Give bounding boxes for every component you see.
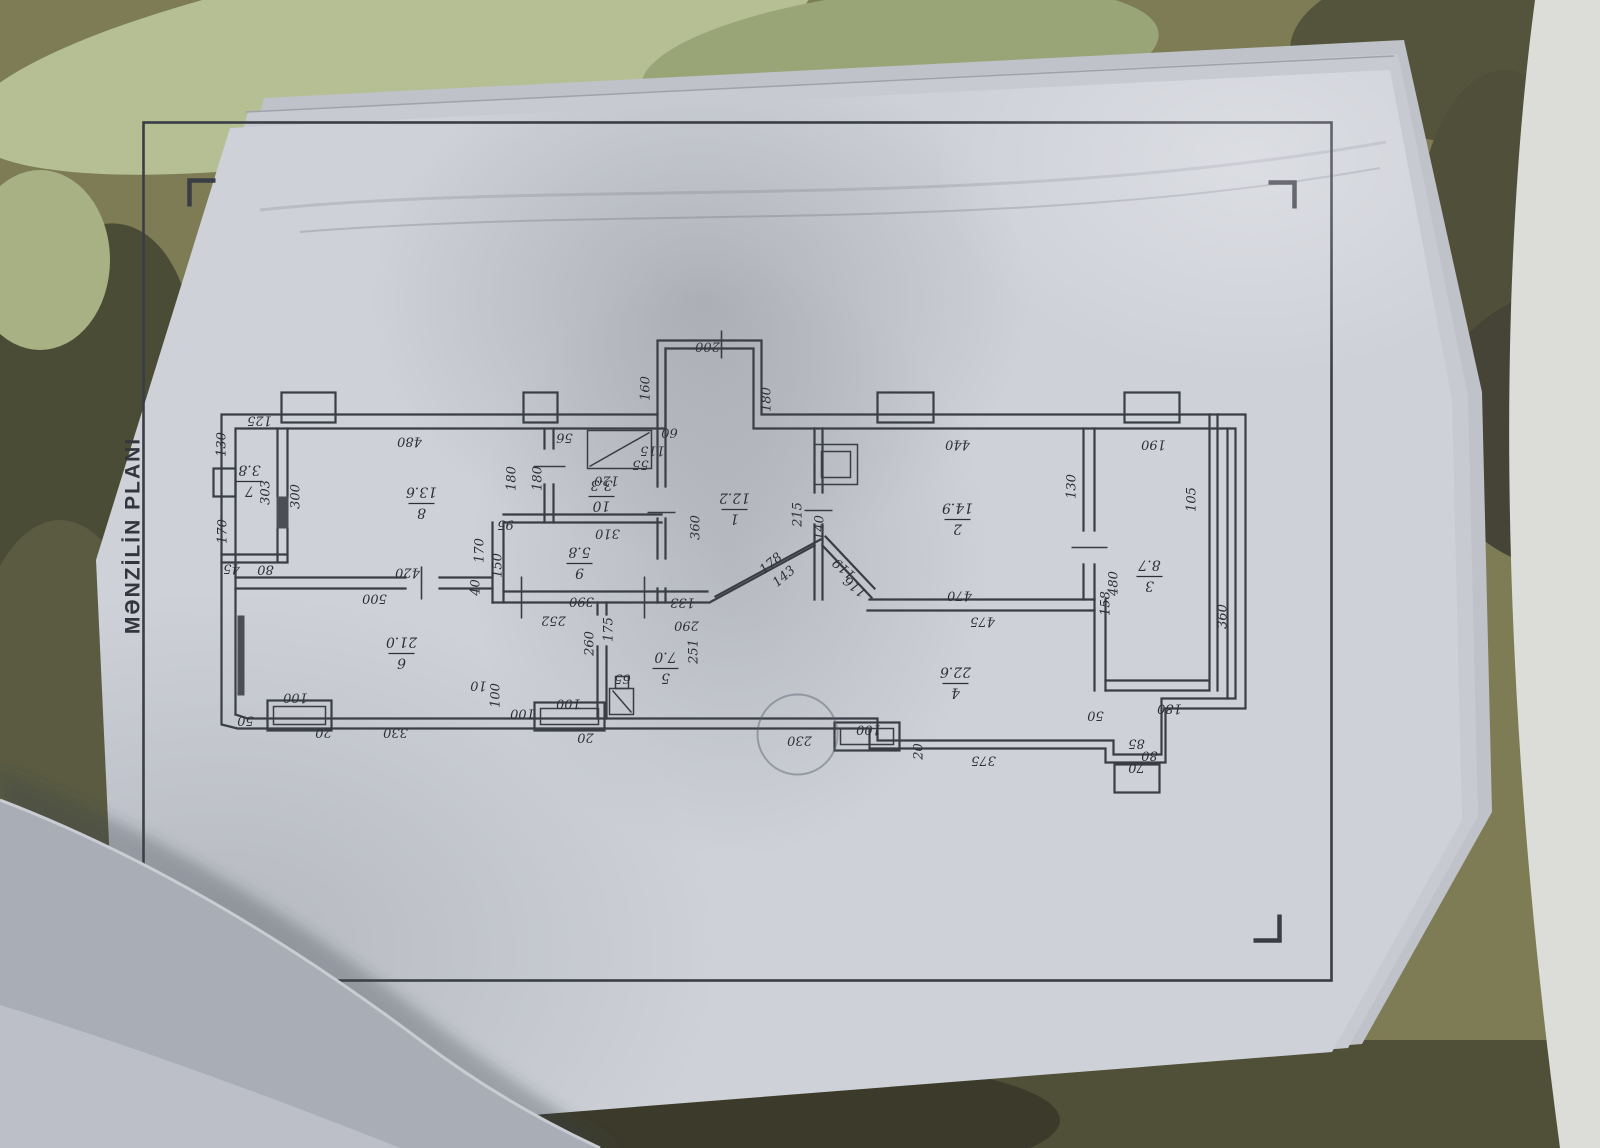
dim-label: 130: [1065, 474, 1080, 499]
dim-label: 180: [1157, 701, 1182, 716]
dim-label: 190: [1141, 437, 1166, 452]
room-number: 7: [245, 483, 254, 499]
dim-label: 70: [1128, 760, 1145, 775]
dim-label: 45: [223, 561, 241, 576]
dim-label: 170: [216, 519, 231, 544]
dim-label: 375: [971, 753, 996, 768]
dim-label: 480: [1107, 571, 1122, 597]
balcony-door: [277, 497, 289, 529]
dim-label: 105: [1185, 487, 1200, 512]
dim-label: 300: [289, 484, 304, 509]
room-area: 13.6: [406, 484, 437, 500]
photographed-document-scene: MƏNZİLİN PLANI: [0, 0, 1600, 1148]
room-number: 8: [417, 505, 426, 521]
room-number: 3: [1145, 578, 1154, 594]
dim-label: 500: [362, 591, 387, 606]
dim-label: 360: [1216, 604, 1231, 629]
dim-label: 303: [259, 480, 274, 505]
dim-label: 125: [247, 413, 272, 428]
dim-label: 130: [215, 432, 230, 457]
dim-label: 50: [1087, 708, 1104, 723]
dim-label: 420: [395, 565, 421, 580]
photo-scene-svg: MƏNZİLİN PLANI: [0, 0, 1600, 1148]
dim-label: 80: [257, 562, 274, 577]
room-area: 3.8: [238, 462, 260, 478]
room-area: 8.7: [1138, 557, 1160, 573]
